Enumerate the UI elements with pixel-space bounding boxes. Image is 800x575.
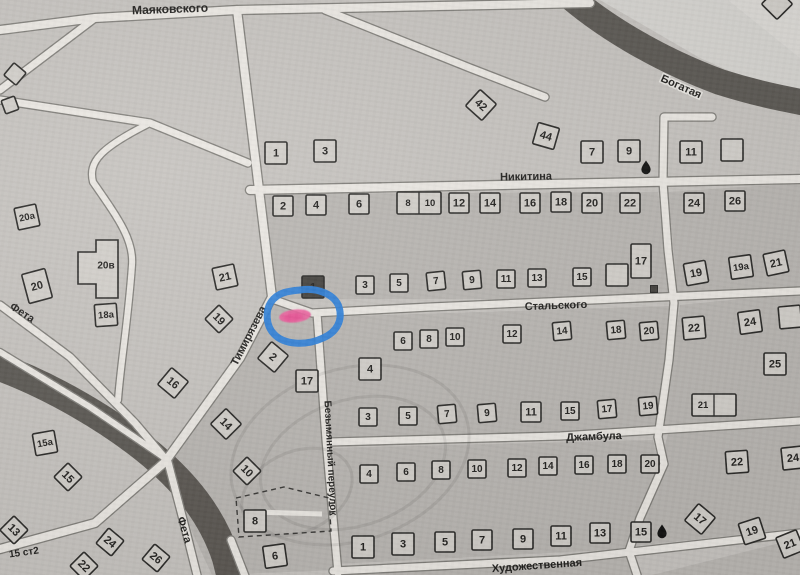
plot-number: 8 [438, 465, 444, 476]
plot-17: 17 [296, 370, 318, 392]
plot-number: 22 [731, 456, 744, 469]
plot-11: 11 [497, 270, 515, 288]
plot-number: 13 [531, 273, 543, 284]
plot-number: 24 [688, 198, 701, 210]
plot-number: 10 [449, 332, 461, 343]
plot-1: 1 [352, 536, 374, 558]
plot-number: 4 [367, 364, 374, 376]
plot-18: 18 [551, 192, 571, 212]
plot-blank [721, 139, 743, 161]
plot-7: 7 [472, 530, 492, 550]
plot-number: 18 [610, 324, 622, 336]
plot-9: 9 [513, 529, 533, 549]
plot-number: 26 [729, 196, 741, 208]
plot-number: 3 [322, 146, 328, 158]
plot-13: 13 [590, 523, 610, 543]
plot-42: 42 [465, 89, 496, 120]
plot-number: 20 [644, 459, 656, 470]
road-casing [0, 100, 248, 163]
plot-number: 15 [635, 527, 647, 539]
plot-12: 12 [508, 459, 526, 477]
plot-24: 24 [96, 528, 124, 556]
plot-3: 3 [356, 276, 374, 294]
plot-11: 11 [521, 402, 541, 422]
plot-number: 5 [405, 411, 411, 422]
plot-18: 18 [608, 455, 626, 473]
plot-15: 15 [631, 522, 651, 542]
plot-number: 19 [689, 267, 703, 281]
plot-number: 12 [506, 329, 518, 340]
plot-number: 4 [313, 200, 320, 212]
plot-number: 18а [98, 309, 115, 321]
plot-number: 21 [698, 400, 709, 411]
plot-5: 5 [390, 274, 408, 292]
plot-6: 6 [394, 332, 412, 350]
plot-number: 5 [396, 278, 402, 289]
plot-19а: 19а [729, 255, 754, 280]
plot-number: 8 [252, 516, 258, 528]
plot-blank [778, 305, 800, 329]
plot-number: 11 [501, 274, 512, 285]
plot-4: 4 [306, 195, 326, 215]
plot-number: 14 [542, 461, 554, 472]
street-label-Джамбула: Джамбула [566, 430, 623, 444]
plot-number: 20в [97, 261, 114, 272]
plot-number: 1 [273, 148, 279, 160]
plot-number: 6 [403, 467, 409, 478]
plot-9: 9 [618, 140, 640, 162]
plot-20v: 20в [78, 240, 118, 298]
plot-number: 17 [301, 376, 313, 388]
droplet-icon [641, 161, 650, 175]
plot-24: 24 [684, 193, 704, 213]
plot-number: 5 [442, 537, 448, 549]
plot-26: 26 [142, 544, 170, 572]
plot-8: 8 [420, 330, 438, 348]
plot-12: 12 [449, 193, 469, 213]
plot-number: 10 [425, 198, 436, 209]
plot-20: 20 [582, 193, 602, 213]
plot-16: 16 [158, 368, 189, 399]
plot-24: 24 [781, 446, 800, 470]
plot-5: 5 [399, 407, 417, 425]
plot-number: 19 [642, 400, 654, 412]
plot-outline [721, 139, 743, 161]
plot-3: 3 [392, 533, 414, 555]
map-canvas: 1342447911246810121416182022242613579111… [0, 0, 800, 575]
plot-15: 15 [573, 268, 591, 286]
plot-6: 6 [397, 463, 415, 481]
plot-7: 7 [426, 271, 446, 291]
plot-19: 19 [638, 396, 658, 416]
plot-number: 19а [732, 261, 750, 274]
plot-15: 15 [54, 463, 82, 491]
plot-number: 11 [685, 147, 697, 159]
plot-number: 16 [524, 198, 536, 210]
plot-25: 25 [764, 353, 786, 375]
plot-number: 2 [280, 201, 286, 213]
plot-18а: 18а [94, 303, 117, 326]
plot-number: 7 [479, 535, 485, 547]
plot-number: 14 [556, 325, 568, 337]
plot-19: 19 [205, 305, 233, 333]
road [0, 305, 197, 575]
scanned-map-page: 1342447911246810121416182022242613579111… [0, 0, 800, 575]
plot-number: 15 [576, 272, 588, 283]
plot-number: 3 [400, 539, 406, 551]
plot-20: 20 [641, 455, 659, 473]
plot-44: 44 [532, 122, 559, 149]
plot-number: 8 [405, 198, 410, 209]
plot-4: 4 [359, 358, 381, 380]
plot-24: 24 [738, 310, 763, 335]
plot-10: 10 [468, 460, 486, 478]
plot-9: 9 [477, 403, 497, 423]
plot-2: 2 [273, 196, 293, 216]
plot-17: 17 [631, 244, 651, 278]
plot-1: 1 [265, 142, 287, 164]
plot-number: 11 [555, 531, 567, 543]
road-casing [0, 305, 197, 575]
plot-outline [606, 264, 628, 286]
plot-17: 17 [597, 399, 617, 419]
plot-4: 4 [360, 465, 378, 483]
plot-number: 1 [360, 542, 366, 554]
plot-number: 17 [635, 256, 647, 268]
plot-14: 14 [539, 457, 557, 475]
plot-number: 3 [365, 412, 371, 423]
plot-18: 18 [606, 320, 626, 340]
plot-14: 14 [480, 193, 500, 213]
plot-number: 14 [484, 198, 497, 210]
plot-number: 12 [453, 198, 465, 210]
plot-number: 21 [769, 256, 783, 270]
plot-6: 6 [349, 194, 369, 214]
plot-22: 22 [725, 450, 748, 473]
plot-number: 18 [611, 459, 623, 470]
plot-5: 5 [435, 532, 455, 552]
plot-11: 11 [680, 141, 702, 163]
plot-number: 25 [769, 359, 781, 371]
plot-number: 21 [218, 270, 232, 284]
plot-number: 7 [589, 147, 595, 159]
plot-number: 18 [555, 197, 567, 209]
plot-number: 10 [471, 464, 483, 475]
plot-number: 24 [786, 452, 800, 465]
plot-12: 12 [503, 325, 521, 343]
plot-6: 6 [263, 544, 288, 569]
plot-number: 22 [687, 322, 700, 335]
plot-number: 3 [362, 280, 368, 291]
plot-number: 6 [400, 336, 406, 347]
plot-22: 22 [70, 552, 98, 575]
plot-7: 7 [437, 404, 457, 424]
plot-number: 13 [594, 528, 606, 540]
plot-8: 8 [432, 461, 450, 479]
street-label-Стальского: Стальского [525, 299, 588, 313]
plot-number: 20 [586, 198, 598, 210]
plot-21: 21 [212, 264, 238, 290]
plot-14: 14 [552, 321, 572, 341]
plot-20: 20 [639, 321, 659, 341]
street-label-Маяковского: Маяковского [132, 1, 209, 18]
plot-9: 9 [462, 270, 482, 290]
plot-3: 3 [314, 140, 336, 162]
plot-number: 11 [525, 407, 537, 419]
plot-number: 4 [366, 469, 372, 480]
plot-21-: 21 [692, 394, 736, 416]
plot-22: 22 [620, 193, 640, 213]
plot-16: 16 [520, 193, 540, 213]
dark-dot-marker [651, 286, 658, 293]
plot-22: 22 [682, 316, 706, 340]
plot-3: 3 [359, 408, 377, 426]
plot-8-10: 810 [397, 192, 441, 214]
plot-number: 17 [601, 403, 613, 415]
plot-number: 20 [643, 325, 655, 337]
plot-number: 8 [426, 334, 432, 345]
plot-number: 9 [626, 146, 632, 158]
plot-8: 8 [244, 510, 266, 532]
plot-number: 6 [356, 199, 362, 211]
plot-11: 11 [551, 526, 571, 546]
plot-20: 20 [22, 268, 53, 303]
plot-blank [606, 264, 628, 286]
plot-16: 16 [575, 456, 593, 474]
plot-21: 21 [763, 250, 789, 276]
street-label-Никитина: Никитина [500, 171, 553, 184]
plot-15а: 15а [32, 430, 57, 455]
plot-number: 15 [564, 406, 576, 417]
plot-number: 9 [520, 534, 526, 546]
plot-19: 19 [683, 260, 708, 285]
plot-number: 22 [624, 198, 636, 210]
plot-13: 13 [528, 269, 546, 287]
plot-15: 15 [561, 402, 579, 420]
plot-7: 7 [581, 141, 603, 163]
plot-10: 10 [446, 328, 464, 346]
road [325, 10, 545, 97]
plot-26: 26 [725, 191, 745, 211]
plot-20а: 20а [14, 204, 40, 230]
plot-outline [778, 305, 800, 329]
plot-number: 16 [578, 460, 590, 471]
plot-number: 12 [511, 463, 523, 474]
